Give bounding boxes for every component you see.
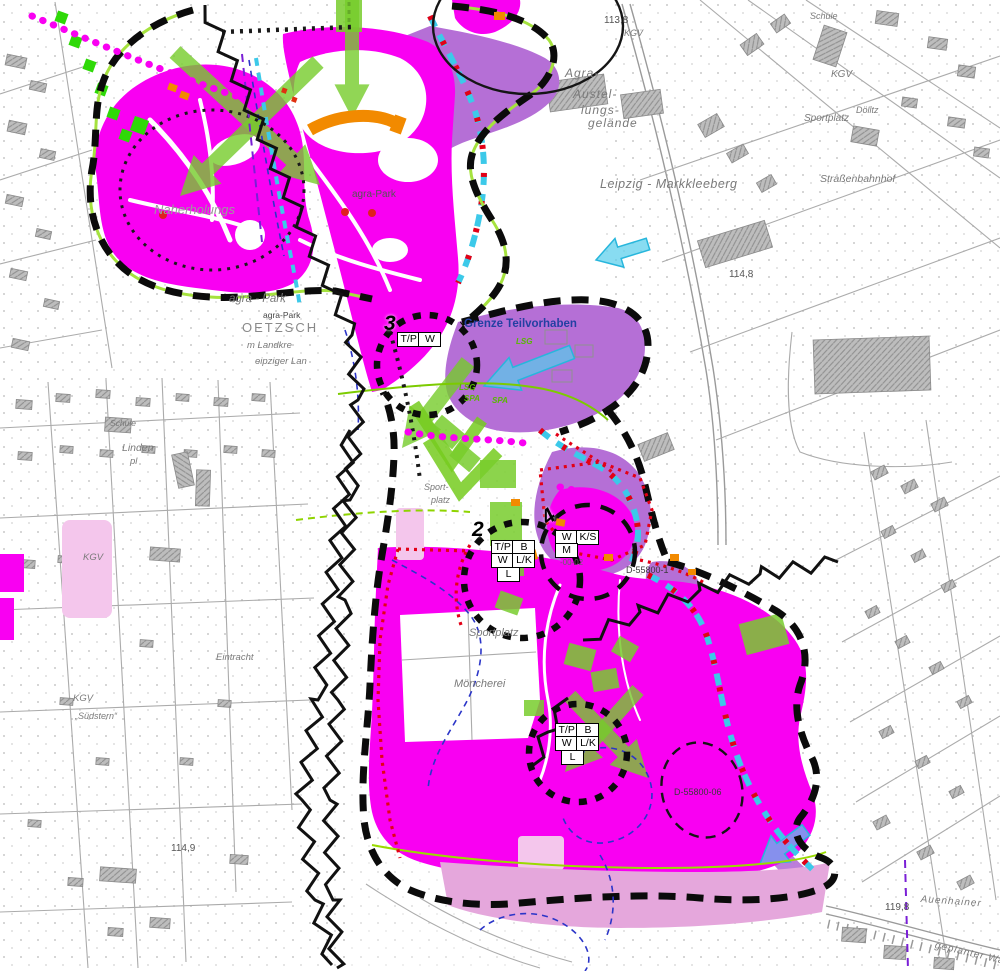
label-schule-topright: Schule — [810, 12, 838, 21]
label-naherholungs: Naherholungs — [154, 203, 235, 216]
marker2-legend-box: T/P B W L/K L — [492, 541, 535, 581]
label-agra-line1: Agra- — [565, 67, 599, 79]
marker4-cell-ks: K/S — [576, 530, 599, 545]
label-elevation-114-8: 114,8 — [729, 270, 753, 280]
label-fragment-00-02: -00-02 — [560, 559, 583, 567]
label-agra-line4: gelände — [588, 117, 638, 129]
marker4-legend-box: W K/S M — [556, 531, 599, 558]
map-drawing — [0, 0, 1000, 971]
label-d55800-1: D-55800-1 — [626, 566, 669, 575]
label-agra-line3: lungs- — [581, 104, 620, 116]
label-leipzig-markkleeberg: Leipzig - Markkleeberg — [600, 178, 737, 191]
label-moencherei: Möncherei — [454, 679, 505, 690]
label-doelitz: Dölitz — [856, 106, 879, 115]
label-agra-park-center: agra-Park — [352, 190, 396, 200]
label-oetzsch: OETZSCH — [242, 321, 318, 334]
label-sportplatz-topright: Sportplatz — [804, 114, 849, 124]
marker3-number: 3 — [384, 312, 396, 336]
label-kgv-left: KGV — [83, 553, 103, 563]
label-d55800-06: D-55800-06 — [674, 788, 722, 797]
marker3-cell-tp: T/P — [397, 332, 420, 347]
label-elevation-114-9: 114,9 — [171, 844, 195, 854]
label-agra-park-west-small: agra-Park — [263, 311, 300, 320]
marker5-legend-box: T/P B W L/K L — [556, 724, 599, 764]
marker3-cell-w: W — [418, 332, 441, 347]
label-elevation-119-8: 119,8 — [885, 903, 909, 913]
marker3-legend-box: T/P W — [398, 333, 441, 346]
label-sportplatz-overlay: Sportplatz — [469, 628, 519, 639]
label-landkreis-fragment: m Landkre — [247, 341, 292, 351]
label-sportplatz-base-2: platz — [431, 496, 450, 505]
planning-map-canvas[interactable]: Schule KGV Dölitz Sportplatz 113,8 KGV A… — [0, 0, 1000, 971]
marker2-cell-l: L — [497, 567, 520, 582]
label-grenze-teilvorhaben: Grenze Teilvorhaben — [464, 319, 577, 331]
label-agra-line2: Austel- — [573, 88, 617, 100]
label-sportplatz-base-1: Sport- — [424, 483, 449, 492]
marker2-number: 2 — [472, 518, 484, 542]
label-agra-park-west: agra - Park — [229, 294, 286, 306]
label-leipziger-land-fragment: eipziger Lan — [255, 357, 307, 367]
label-spa-b: SPA — [492, 397, 508, 405]
label-kgv-topright: KGV — [831, 70, 852, 80]
label-kgv-bottomleft: KGV — [73, 694, 93, 704]
label-strassenbahnhof: Straßenbahnhof — [820, 174, 895, 185]
label-kgv-topcenter: KGV — [624, 29, 643, 38]
marker5-cell-l: L — [561, 750, 584, 765]
label-linden-pl: pl — [130, 457, 137, 467]
label-spa-a: SPA — [464, 395, 480, 403]
label-linden: Linden — [122, 443, 154, 454]
label-lsg-b: LSG — [459, 384, 475, 392]
label-schule-left: Schule — [110, 419, 136, 428]
label-suedstern: „Südstern“ — [75, 712, 117, 721]
label-elevation-113-8: 113,8 — [604, 16, 628, 26]
label-lsg-a: LSG — [516, 338, 532, 346]
marker4-cell-m: M — [555, 543, 578, 558]
label-eintracht: Eintracht — [216, 653, 254, 663]
